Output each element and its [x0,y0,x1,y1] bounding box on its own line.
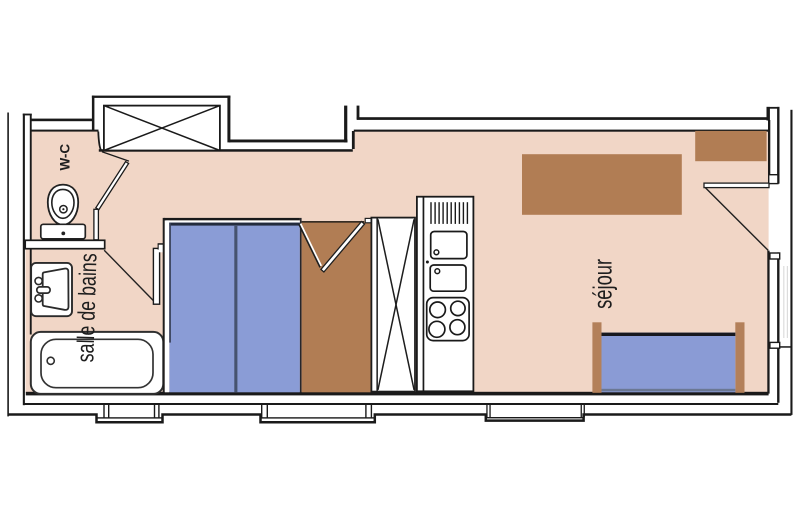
svg-text:séjour: séjour [587,259,617,309]
svg-text:salle de bains: salle de bains [72,253,102,363]
svg-text:W-C: W-C [58,144,73,171]
